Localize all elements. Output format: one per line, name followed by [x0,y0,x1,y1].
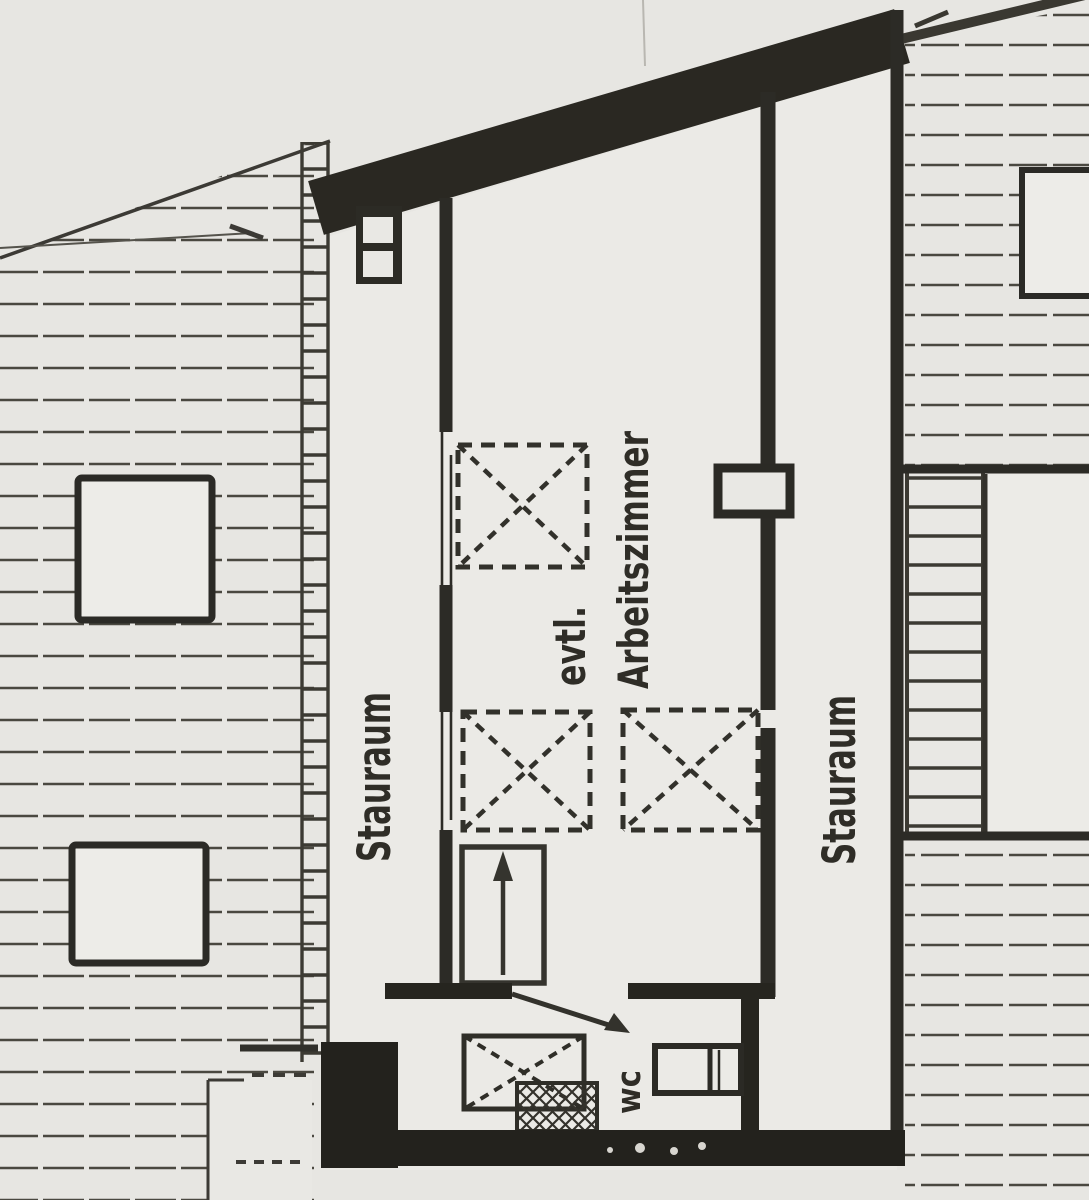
knee-wall-left [442,198,451,990]
vent-shaft-symbol [356,206,402,284]
label-stauraum-right: Stauraum [813,695,866,865]
left-roof-window-upper [78,478,212,620]
right-roof-window [1022,170,1089,296]
floor-plan-drawing: Stauraum evtl. Arbeitszimmer Stauraum wc [0,0,1089,1200]
right-stairwell-strip [905,472,985,834]
label-stauraum-left: Stauraum [348,692,401,862]
left-eave-strip [301,142,329,1062]
right-dormer-area [985,474,1089,832]
staircase [462,847,544,983]
label-evtl: evtl. [546,606,595,686]
floor-plan-scan: Stauraum evtl. Arbeitszimmer Stauraum wc [0,0,1089,1200]
washbasin-symbol [517,1083,597,1131]
unit-bottom-wall [321,1130,905,1166]
left-roof-window-lower [72,845,206,963]
label-wc: wc [609,1070,648,1114]
chimney-symbol [718,468,790,514]
left-roof-hatch [0,140,330,1200]
label-arbeitszimmer: Arbeitszimmer [609,431,658,689]
right-roof-hatch [900,6,1089,1200]
toilet-symbol [655,1046,741,1093]
